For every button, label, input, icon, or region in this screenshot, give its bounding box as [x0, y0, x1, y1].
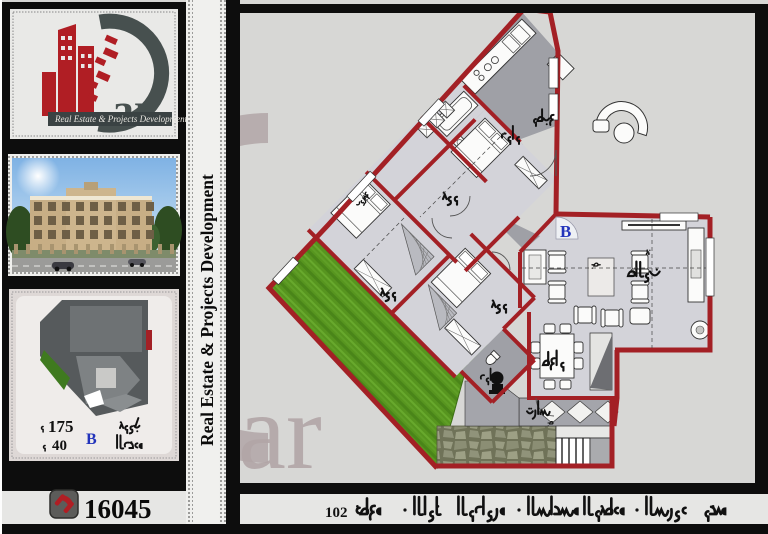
svg-text:Real Estate & Projects Develop: Real Estate & Projects Development: [54, 114, 188, 124]
svg-text:102: 102: [325, 505, 348, 521]
svg-text:ar: ar: [112, 85, 154, 134]
svg-text:40: 40: [52, 438, 67, 454]
svg-text:175: 175: [48, 417, 74, 436]
svg-text:B: B: [86, 431, 97, 448]
svg-text:ar: ar: [238, 373, 322, 492]
svg-text:16045: 16045: [84, 494, 152, 524]
svg-text:Real Estate & Projects Develop: Real Estate & Projects Development: [197, 174, 217, 446]
svg-text:B: B: [560, 222, 571, 241]
